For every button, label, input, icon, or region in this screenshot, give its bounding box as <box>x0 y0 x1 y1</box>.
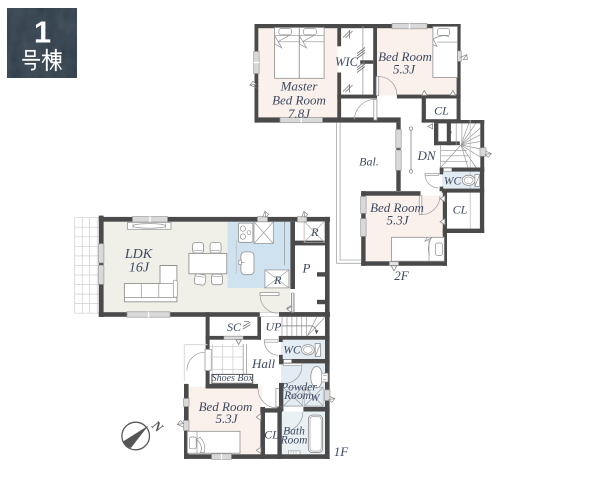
svg-text:CL: CL <box>434 104 449 118</box>
svg-text:WC: WC <box>283 345 301 357</box>
svg-text:Bal.: Bal. <box>359 155 379 169</box>
svg-text:2F: 2F <box>394 268 410 283</box>
svg-text:1F: 1F <box>334 444 350 459</box>
svg-text:R: R <box>273 273 282 287</box>
svg-text:WIC: WIC <box>335 55 359 69</box>
svg-text:Master: Master <box>280 79 319 94</box>
svg-text:CL: CL <box>453 203 468 217</box>
svg-text:5.3J: 5.3J <box>393 62 416 77</box>
svg-text:SC: SC <box>227 320 242 334</box>
svg-text:Shoes Box: Shoes Box <box>212 373 254 384</box>
svg-text:WC: WC <box>444 176 462 188</box>
svg-text:Room: Room <box>283 390 311 402</box>
svg-text:Hall: Hall <box>251 356 276 371</box>
svg-text:CL: CL <box>264 428 279 442</box>
svg-text:R: R <box>310 225 319 239</box>
svg-text:W: W <box>310 392 320 404</box>
svg-text:7.8J: 7.8J <box>288 106 311 121</box>
svg-text:16J: 16J <box>129 261 150 276</box>
svg-text:UP: UP <box>266 320 283 334</box>
svg-text:1: 1 <box>34 15 51 50</box>
svg-text:Room: Room <box>280 435 308 447</box>
svg-text:P: P <box>302 261 311 276</box>
svg-text:DN: DN <box>416 148 436 163</box>
svg-text:5.3J: 5.3J <box>386 213 409 228</box>
svg-text:5.3J: 5.3J <box>215 411 238 426</box>
svg-text:N: N <box>148 417 167 436</box>
